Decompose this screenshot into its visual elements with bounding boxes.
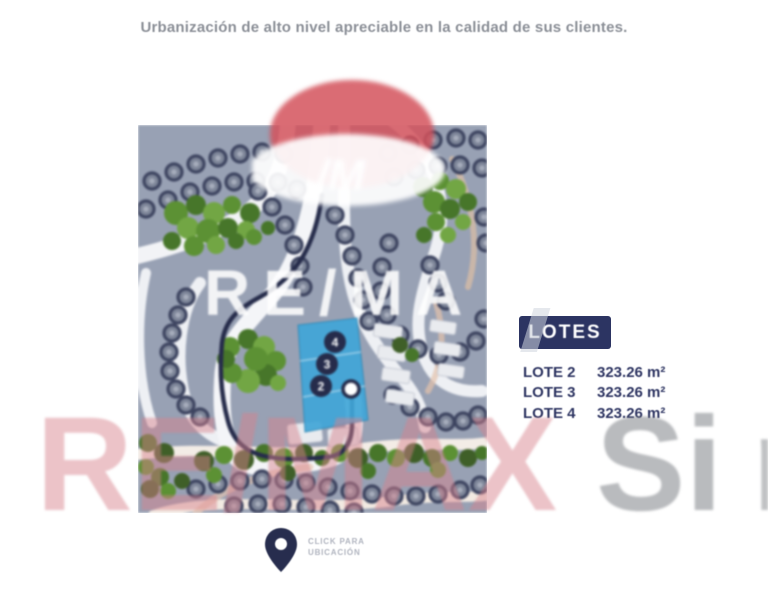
lotes-title: LOTES xyxy=(528,322,601,344)
lote-3-area: 323.26 m² xyxy=(597,384,665,401)
lot-3-marker[interactable]: 3 xyxy=(316,353,338,375)
location-cta-line2: UBICACIÓN xyxy=(308,547,365,558)
lotes-title-box: LOTES xyxy=(519,316,611,349)
location-cta[interactable]: CLICK PARA UBICACIÓN xyxy=(308,536,365,558)
location-pin-icon[interactable] xyxy=(264,527,298,573)
lote-row-3: LOTE 3 323.26 m² xyxy=(523,383,665,404)
lote-row-2: LOTE 2 323.26 m² xyxy=(523,362,665,383)
lote-2-label: LOTE 2 xyxy=(523,364,587,381)
svg-text:2: 2 xyxy=(318,380,325,394)
lote-3-label: LOTE 3 xyxy=(523,384,587,401)
lote-list: LOTE 2 323.26 m² LOTE 3 323.26 m² LOTE 4… xyxy=(523,362,665,424)
lot-2-marker[interactable]: 2 xyxy=(310,375,332,397)
lote-4-area: 323.26 m² xyxy=(597,405,665,422)
lote-2-area: 323.26 m² xyxy=(597,364,665,381)
highlighted-lots[interactable]: 4 3 2 xyxy=(298,318,368,432)
site-map[interactable]: 4 3 2 RE/MA xyxy=(138,125,487,513)
page-caption: Urbanización de alto nivel apreciable en… xyxy=(0,19,768,36)
lote-row-4: LOTE 4 323.26 m² xyxy=(523,403,665,424)
location-dot-marker xyxy=(343,381,359,397)
svg-text:4: 4 xyxy=(332,336,339,350)
remax-watermark-clipped-letter: n xyxy=(752,398,768,523)
svg-text:3: 3 xyxy=(324,358,331,372)
lote-4-label: LOTE 4 xyxy=(523,405,587,422)
location-cta-line1: CLICK PARA xyxy=(308,536,365,547)
map-remax-watermark: RE/MA xyxy=(204,257,475,329)
site-map-graphic: 4 3 2 RE/MA xyxy=(138,125,487,513)
lot-4-marker[interactable]: 4 xyxy=(324,331,346,353)
